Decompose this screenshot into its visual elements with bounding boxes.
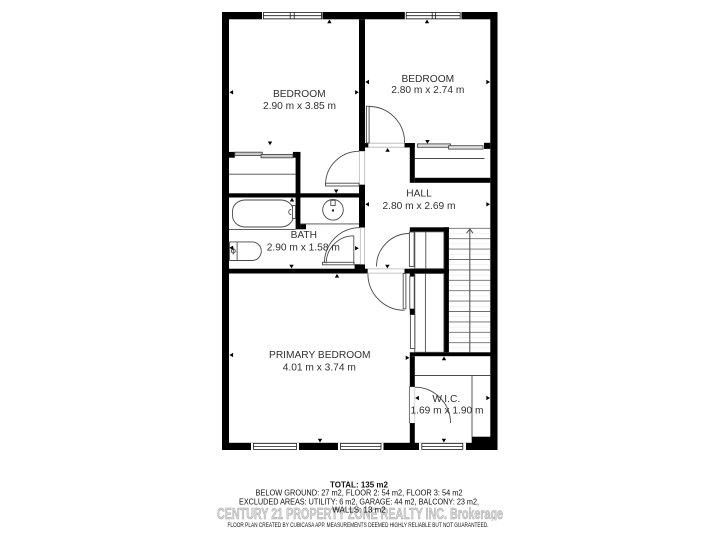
svg-text:WALLS: 13 m2: WALLS: 13 m2 (332, 506, 386, 515)
svg-text:2.80 m x 2.69 m: 2.80 m x 2.69 m (382, 201, 455, 212)
svg-text:2.90 m x 3.85 m: 2.90 m x 3.85 m (263, 101, 336, 112)
svg-text:W.I.C.: W.I.C. (432, 394, 460, 405)
svg-text:BEDROOM: BEDROOM (273, 89, 326, 100)
svg-text:4.01 m x 3.74 m: 4.01 m x 3.74 m (283, 362, 356, 373)
svg-text:HALL: HALL (406, 189, 432, 200)
svg-text:2.80 m x 2.74 m: 2.80 m x 2.74 m (391, 85, 464, 96)
svg-text:BELOW GROUND: 27 m2, FLOOR 2:: BELOW GROUND: 27 m2, FLOOR 2: 54 m2, FLO… (256, 489, 464, 498)
svg-text:BEDROOM: BEDROOM (401, 74, 454, 85)
svg-text:1.69 m x 1.90 m: 1.69 m x 1.90 m (410, 406, 483, 417)
svg-text:FLOOR PLAN CREATED BY CUBICASA: FLOOR PLAN CREATED BY CUBICASA APP. MEAS… (228, 522, 489, 529)
svg-text:PRIMARY BEDROOM: PRIMARY BEDROOM (269, 350, 371, 361)
svg-text:2.90 m x 1.58 m: 2.90 m x 1.58 m (267, 242, 340, 253)
svg-text:BATH: BATH (291, 230, 317, 241)
